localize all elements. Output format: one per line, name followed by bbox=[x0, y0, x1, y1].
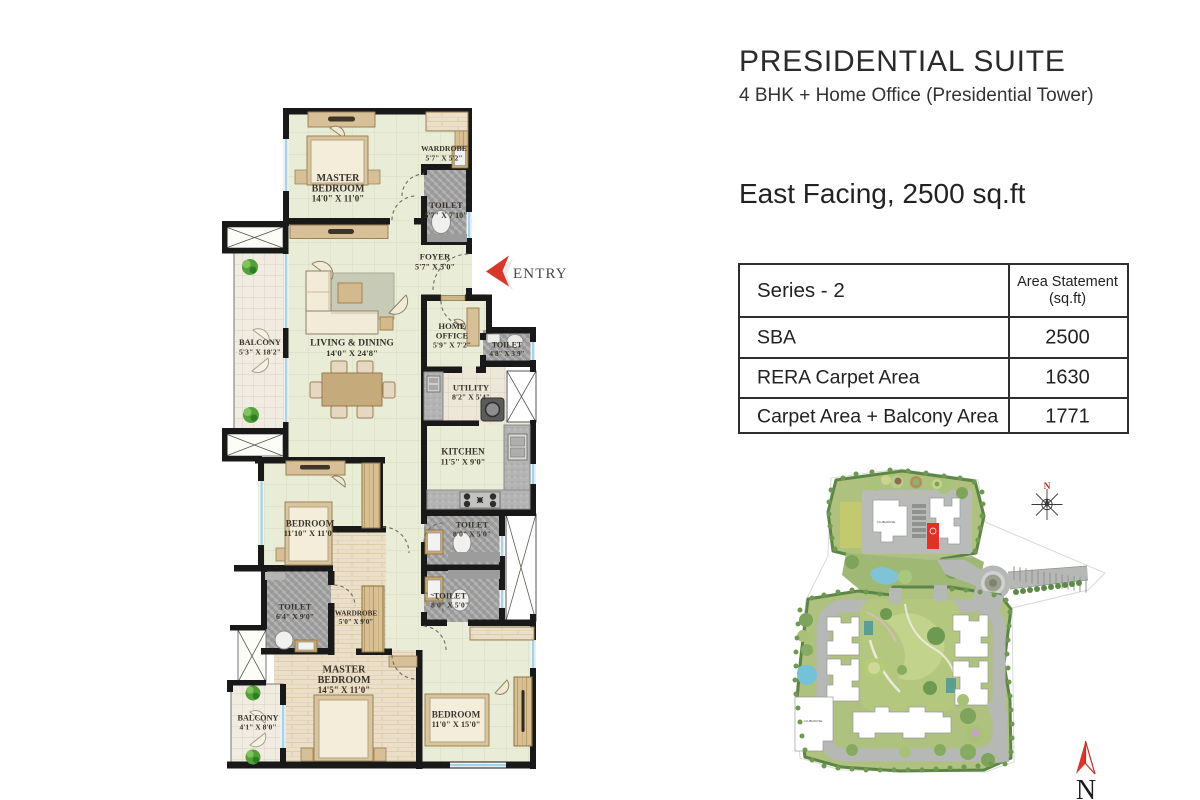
svg-text:8'2" X 5'4": 8'2" X 5'4" bbox=[452, 393, 490, 402]
svg-text:CLUBHOUSE: CLUBHOUSE bbox=[877, 520, 896, 524]
svg-text:5'7" X 7'10": 5'7" X 7'10" bbox=[424, 211, 467, 220]
svg-text:BALCONY: BALCONY bbox=[239, 338, 281, 347]
svg-text:14'0" X 24'8": 14'0" X 24'8" bbox=[326, 348, 378, 358]
svg-text:11'0" X 15'0": 11'0" X 15'0" bbox=[432, 720, 481, 729]
svg-text:8'0" X 5'0": 8'0" X 5'0" bbox=[453, 530, 491, 539]
svg-text:4'8" X 3'9": 4'8" X 3'9" bbox=[489, 350, 524, 358]
svg-text:14'5" X 11'0": 14'5" X 11'0" bbox=[318, 685, 371, 695]
svg-text:MASTER: MASTER bbox=[323, 665, 367, 676]
svg-text:5'3" X 18'2": 5'3" X 18'2" bbox=[239, 348, 281, 357]
svg-text:FOYER: FOYER bbox=[420, 252, 451, 262]
svg-text:TOILET: TOILET bbox=[279, 602, 312, 612]
svg-text:5'7" X 5'0": 5'7" X 5'0" bbox=[415, 263, 455, 272]
svg-text:WARDROBE: WARDROBE bbox=[421, 144, 467, 153]
svg-text:TOILET: TOILET bbox=[434, 591, 467, 601]
svg-text:ENTRY: ENTRY bbox=[513, 266, 568, 282]
svg-text:HOME: HOME bbox=[438, 321, 465, 331]
svg-text:TOILET: TOILET bbox=[429, 200, 463, 210]
svg-text:5'0" X 9'0": 5'0" X 9'0" bbox=[339, 618, 373, 626]
svg-text:KITCHEN: KITCHEN bbox=[441, 447, 485, 457]
svg-text:N: N bbox=[1044, 482, 1051, 492]
svg-text:5'9" X 7'2": 5'9" X 7'2" bbox=[433, 341, 471, 350]
svg-text:4'1" X 8'0": 4'1" X 8'0" bbox=[239, 723, 276, 732]
svg-text:6'4" X 9'0": 6'4" X 9'0" bbox=[276, 612, 314, 621]
svg-text:5'7" X 5'2": 5'7" X 5'2" bbox=[425, 154, 462, 163]
svg-text:BEDROOM: BEDROOM bbox=[286, 519, 335, 529]
svg-text:UTILITY: UTILITY bbox=[453, 383, 490, 393]
svg-text:LIVING & DINING: LIVING & DINING bbox=[310, 338, 394, 349]
svg-text:BEDROOM: BEDROOM bbox=[432, 710, 481, 720]
svg-text:BALCONY: BALCONY bbox=[238, 714, 279, 723]
svg-text:11'10" X 11'0": 11'10" X 11'0" bbox=[284, 529, 337, 538]
svg-text:MASTER: MASTER bbox=[317, 173, 361, 184]
svg-text:WARDROBE: WARDROBE bbox=[335, 610, 378, 618]
svg-text:11'5" X 9'0": 11'5" X 9'0" bbox=[441, 458, 486, 467]
svg-text:OFFICE: OFFICE bbox=[436, 331, 469, 341]
svg-text:TOILET: TOILET bbox=[456, 520, 489, 530]
svg-text:CLUBHOUSE: CLUBHOUSE bbox=[804, 719, 823, 723]
svg-text:N: N bbox=[1076, 775, 1096, 800]
svg-text:TOILET: TOILET bbox=[492, 341, 523, 350]
svg-text:8'0" X 5'0": 8'0" X 5'0" bbox=[431, 601, 469, 610]
svg-text:14'0" X 11'0": 14'0" X 11'0" bbox=[312, 194, 365, 204]
